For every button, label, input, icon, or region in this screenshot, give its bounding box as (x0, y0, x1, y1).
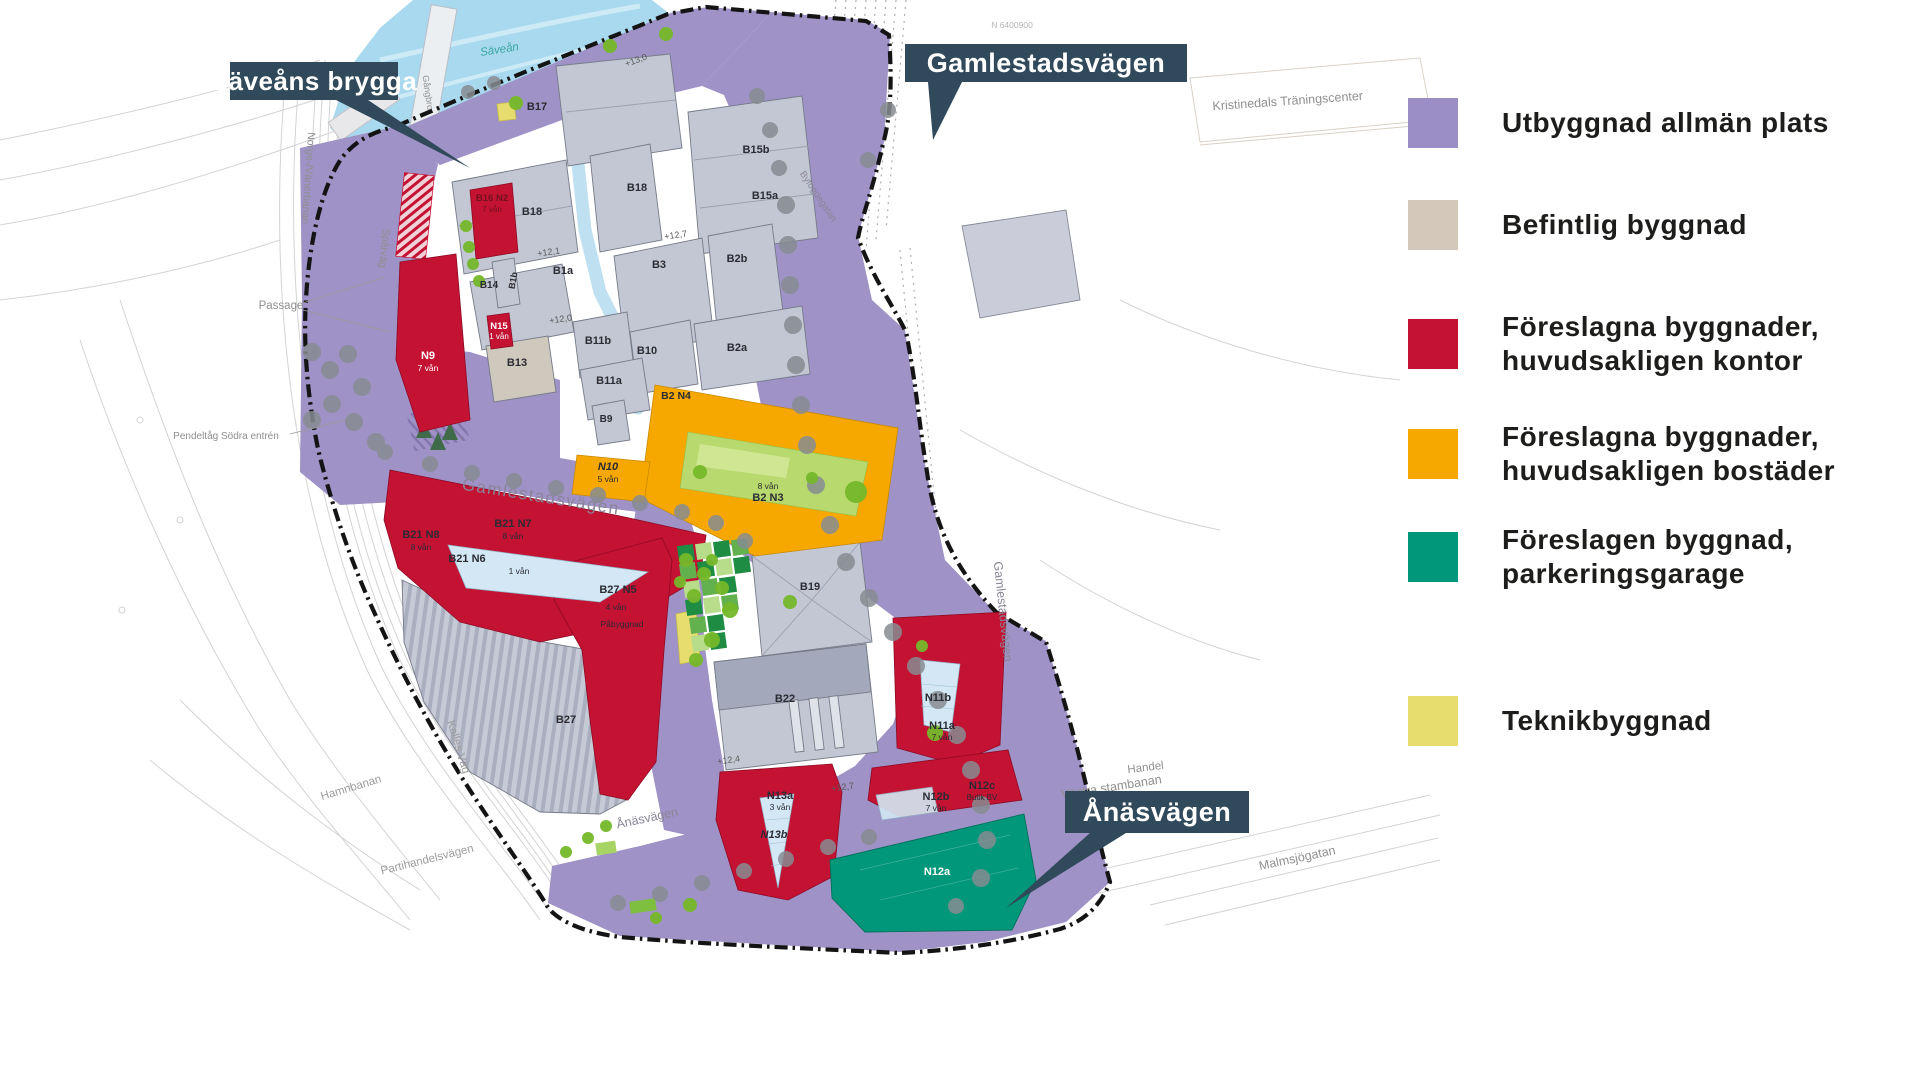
map-label: B14 (480, 280, 499, 291)
map-label: 1 vån (489, 332, 509, 341)
map-label: 7 vån (482, 205, 502, 214)
callout-gamlestadsvagen-label: Gamlestadsvägen (927, 48, 1166, 78)
building-b18-east (590, 144, 662, 252)
map-label: N13a (767, 790, 794, 802)
tree-marker (792, 396, 810, 414)
map-label: 3 vån (770, 802, 791, 812)
legend-item-teknikbyggnad: Teknikbyggnad (1408, 696, 1712, 746)
tree-marker (821, 516, 839, 534)
legend-label-foreslagna-byggnader-bostader: Föreslagna byggnader,huvudsakligen bostä… (1502, 420, 1835, 488)
map-label: N11b (925, 692, 952, 704)
map-label: N 6400900 (991, 20, 1033, 30)
map-label: B9 (600, 414, 613, 425)
tree-marker (784, 316, 802, 334)
legend: Utbyggnad allmän platsBefintlig byggnadF… (1408, 0, 1920, 1080)
map-label: Påbyggnad (600, 619, 643, 629)
tree-marker (708, 515, 724, 531)
tree-marker (683, 898, 697, 912)
callout-saveans-brygga-label: Säveåns brygga (211, 66, 417, 96)
map-label: 7 vån (932, 732, 953, 742)
legend-swatch-befintlig-byggnad (1408, 200, 1458, 250)
map-label: N12c (969, 780, 995, 792)
tree-marker (722, 602, 738, 618)
tree-marker (303, 411, 321, 429)
map-label: B21 N7 (494, 518, 531, 530)
map-label: B13 (507, 357, 527, 369)
tree-marker (806, 472, 818, 484)
park-square (689, 616, 707, 634)
tree-marker (737, 533, 753, 549)
tree-marker (787, 356, 805, 374)
tree-marker (321, 361, 339, 379)
map-label: B2b (727, 253, 748, 265)
map-label: 7 vån (926, 803, 947, 813)
tree-marker (771, 160, 787, 176)
tree-marker (861, 829, 877, 845)
tree-marker (339, 345, 357, 363)
tree-marker (820, 839, 836, 855)
tree-marker (884, 623, 902, 641)
map-label: 8 vån (758, 481, 779, 491)
legend-swatch-utbyggnad-allman-plats (1408, 98, 1458, 148)
legend-swatch-foreslagna-byggnader-bostader (1408, 429, 1458, 479)
tree-marker (323, 395, 341, 413)
map-label: 5 vån (598, 474, 619, 484)
map-label: B18 (522, 206, 542, 218)
tree-marker (972, 869, 990, 887)
legend-swatch-teknikbyggnad (1408, 696, 1458, 746)
map-label: B2 N4 (661, 390, 691, 402)
park-square (733, 556, 751, 574)
callout-gamlestadsvagen: Gamlestadsvägen (905, 44, 1187, 140)
map-label: B3 (652, 259, 666, 271)
map-label: 1 vån (509, 566, 530, 576)
map-label: N11a (929, 720, 956, 732)
tree-marker (674, 576, 686, 588)
tree-marker (603, 39, 617, 53)
map-label: 7 vån (418, 363, 439, 373)
map-label: N9 (421, 350, 435, 362)
tree-marker (777, 196, 795, 214)
map-label: B1a (553, 265, 574, 277)
tree-marker (694, 875, 710, 891)
tree-marker (303, 343, 321, 361)
map-label: 8 vån (503, 531, 524, 541)
tree-marker (353, 378, 371, 396)
tree-marker (460, 220, 472, 232)
tree-marker (736, 863, 752, 879)
legend-item-foreslagna-byggnader-bostader: Föreslagna byggnader,huvudsakligen bostä… (1408, 420, 1835, 488)
legend-label-foreslagen-byggnad-parkeringsgarage: Föreslagen byggnad,parkeringsgarage (1502, 523, 1793, 591)
building-outside-ne (962, 210, 1080, 318)
map-label: Kristinedals Träningscenter (1212, 89, 1363, 113)
tree-marker (463, 241, 475, 253)
tree-marker (610, 895, 626, 911)
tree-marker (962, 761, 980, 779)
tree-marker (749, 88, 765, 104)
legend-swatch-foreslagen-byggnad-parkeringsgarage (1408, 532, 1458, 582)
tree-marker (652, 886, 668, 902)
map-label: N10 (598, 461, 619, 473)
tree-marker (687, 589, 701, 603)
tree-marker (798, 436, 816, 454)
tree-marker (467, 258, 479, 270)
tree-marker (762, 122, 778, 138)
site-plan-page: B17B15bB15aB18B18B1aB1bB14B3B2bB2aB10B11… (0, 0, 1920, 1080)
map-label: B11b (585, 335, 612, 347)
map-label: B19 (800, 581, 820, 593)
map-label: Pendeltåg Södra entrén (173, 430, 279, 442)
tree-marker (706, 554, 718, 566)
legend-swatch-foreslagna-byggnader-kontor (1408, 319, 1458, 369)
tree-marker (845, 481, 867, 503)
tree-marker (916, 640, 928, 652)
park-square (707, 614, 725, 632)
legend-item-foreslagen-byggnad-parkeringsgarage: Föreslagen byggnad,parkeringsgarage (1408, 523, 1793, 591)
tree-marker (880, 102, 896, 118)
park-square (703, 596, 721, 614)
map-label: 4 vån (606, 602, 627, 612)
map-label: B27 N5 (599, 584, 636, 596)
tree-marker (487, 76, 501, 90)
legend-label-utbyggnad-allman-plats: Utbyggnad allmän plats (1502, 106, 1829, 140)
tree-marker (715, 581, 729, 595)
map-label: B2a (727, 342, 748, 354)
map-label: B21 N8 (402, 529, 439, 541)
tree-marker (978, 831, 996, 849)
callout-anasvagen-label: Ånäsvägen (1083, 796, 1232, 827)
building-b17 (556, 54, 682, 166)
tree-marker (632, 495, 648, 511)
map-label: +12,7 (664, 228, 688, 241)
tree-marker (461, 85, 475, 99)
map-label: B22 (775, 693, 795, 705)
map-label: B16 N2 (476, 193, 508, 204)
tree-marker (422, 456, 438, 472)
legend-item-utbyggnad-allman-plats: Utbyggnad allmän plats (1408, 98, 1829, 148)
tree-marker (704, 632, 720, 648)
tree-marker (674, 504, 690, 520)
map-label: B15a (752, 190, 779, 202)
map-label: 8 vån (411, 542, 432, 552)
tree-marker (907, 657, 925, 675)
tree-marker (659, 27, 673, 41)
map-label: Butik BV (967, 793, 998, 802)
map-label: B17 (527, 101, 547, 113)
map-label: Partihandelsvägen (380, 843, 475, 878)
map-label: N13b (761, 829, 788, 841)
map-label: N15 (490, 321, 508, 332)
tree-marker (650, 912, 662, 924)
map-label: Passage (259, 300, 304, 312)
tree-marker (781, 276, 799, 294)
legend-label-foreslagna-byggnader-kontor: Föreslagna byggnader,huvudsakligen konto… (1502, 310, 1819, 378)
tree-marker (367, 433, 385, 451)
tree-marker (697, 567, 711, 581)
map-label: B2 N3 (752, 492, 783, 504)
tree-marker (783, 595, 797, 609)
tree-marker (582, 832, 594, 844)
map-label: B18 (627, 182, 647, 194)
map-label: B11a (596, 375, 623, 387)
tree-marker (837, 553, 855, 571)
legend-item-befintlig-byggnad: Befintlig byggnad (1408, 200, 1747, 250)
map-label: Hamnbanan (319, 773, 382, 803)
tree-marker (860, 152, 876, 168)
map-label: +12,1 (537, 245, 561, 258)
map-label: B27 (556, 714, 576, 726)
tree-marker (693, 465, 707, 479)
map-label: B15b (743, 144, 770, 156)
tree-marker (679, 553, 693, 567)
tree-marker (860, 589, 878, 607)
tree-marker (778, 851, 794, 867)
tree-marker (948, 898, 964, 914)
tree-marker (689, 653, 703, 667)
tree-marker (560, 846, 572, 858)
tree-marker (779, 236, 797, 254)
map-label: B10 (637, 345, 657, 357)
tree-marker (509, 96, 523, 110)
legend-label-befintlig-byggnad: Befintlig byggnad (1502, 208, 1747, 242)
tree-marker (600, 820, 612, 832)
legend-item-foreslagna-byggnader-kontor: Föreslagna byggnader,huvudsakligen konto… (1408, 310, 1819, 378)
map-label: N12b (923, 791, 950, 803)
map-label: B21 N6 (448, 553, 485, 565)
tree-marker (345, 413, 363, 431)
map-label: N12a (924, 866, 951, 878)
legend-label-teknikbyggnad: Teknikbyggnad (1502, 704, 1712, 738)
